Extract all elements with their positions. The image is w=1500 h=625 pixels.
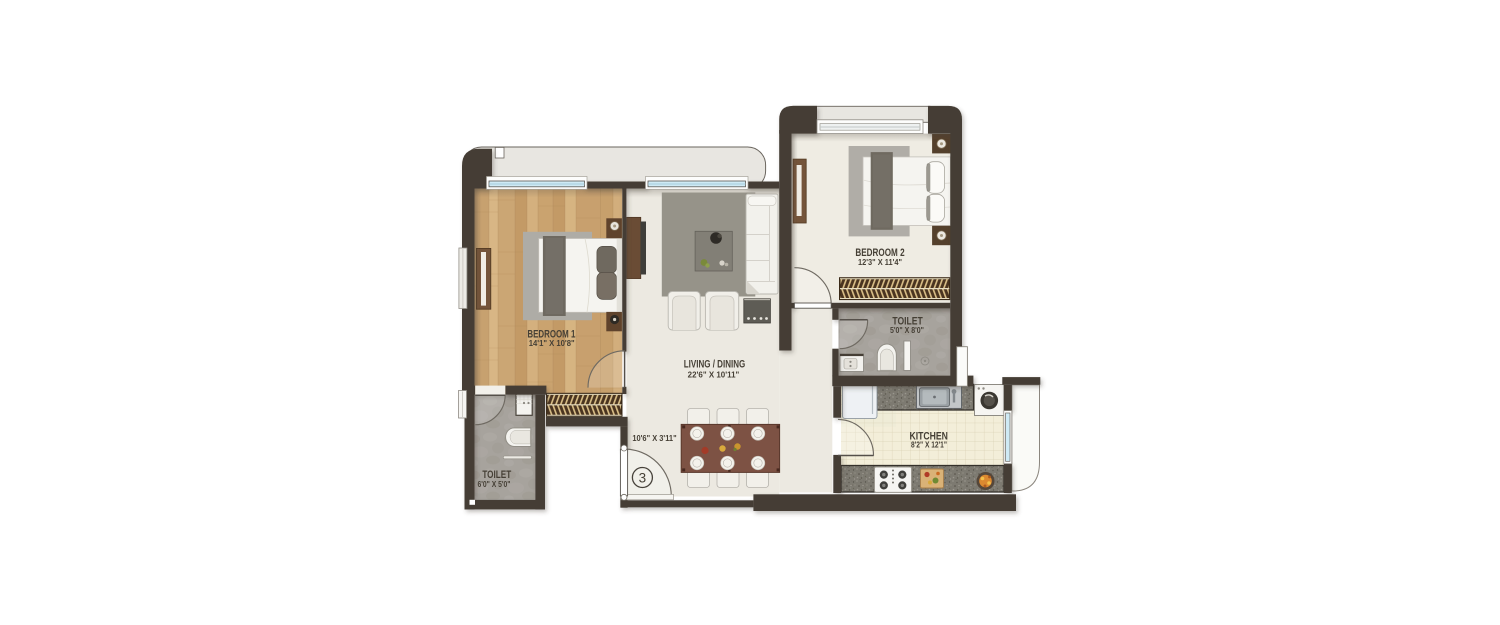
svg-text:BEDROOM 2: BEDROOM 2: [855, 247, 904, 259]
svg-text:12'3" X 11'4": 12'3" X 11'4": [858, 258, 902, 267]
svg-text:8'2" X 12'1": 8'2" X 12'1": [911, 440, 947, 449]
svg-text:6'0" X 5'0": 6'0" X 5'0": [478, 480, 511, 489]
svg-text:3: 3: [639, 471, 647, 486]
svg-text:5'0" X 8'0": 5'0" X 8'0": [890, 326, 924, 335]
svg-text:10'6" X 3'11": 10'6" X 3'11": [632, 434, 677, 443]
svg-text:22'6" X 10'11": 22'6" X 10'11": [688, 371, 740, 380]
svg-text:LIVING / DINING: LIVING / DINING: [684, 359, 746, 371]
svg-text:14'1" X 10'8": 14'1" X 10'8": [529, 339, 575, 348]
